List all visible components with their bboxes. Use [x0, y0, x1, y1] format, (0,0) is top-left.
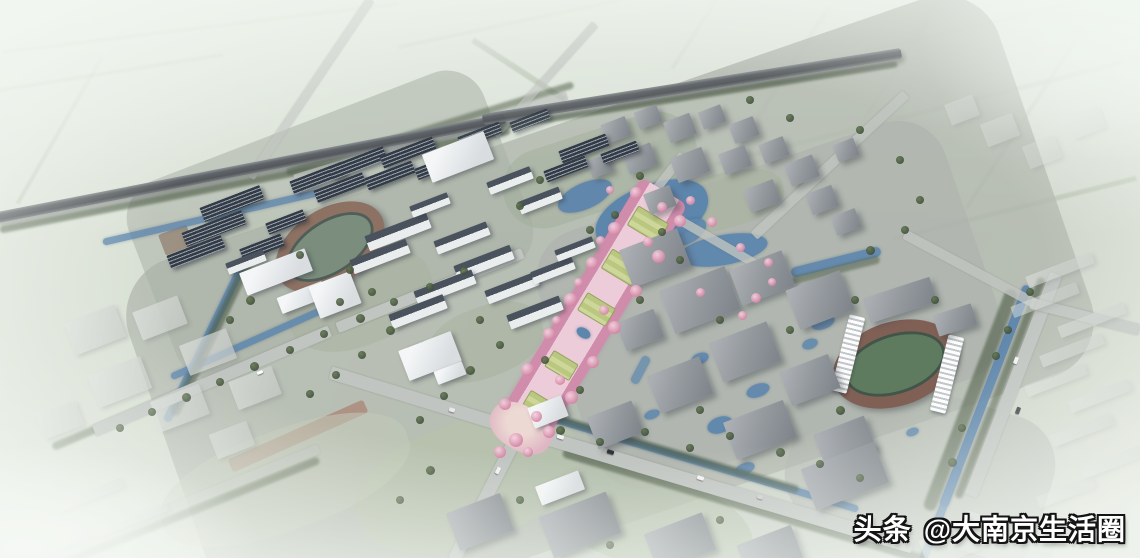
- tree: [416, 416, 424, 424]
- tree: [1026, 288, 1034, 296]
- blossom-tree: [523, 447, 533, 457]
- watermark: 头条@大南京生活圈: [854, 508, 1126, 548]
- tree: [586, 226, 594, 234]
- blossom-tree: [586, 257, 598, 269]
- tree: [466, 366, 475, 375]
- tree: [536, 176, 544, 184]
- tree: [866, 246, 875, 255]
- tree: [948, 458, 957, 467]
- blossom-tree: [630, 285, 642, 297]
- tree: [576, 386, 584, 394]
- tree: [776, 448, 785, 457]
- tree: [346, 266, 354, 274]
- tree: [641, 428, 649, 436]
- tree: [658, 228, 666, 236]
- tree: [516, 202, 524, 210]
- blossom-tree: [531, 411, 542, 422]
- blossom-tree: [608, 321, 621, 334]
- tree: [476, 316, 484, 324]
- tree: [992, 352, 1000, 360]
- tree: [426, 283, 434, 291]
- tree: [636, 172, 644, 180]
- blossom-tree: [555, 375, 565, 385]
- blossom-tree: [552, 316, 561, 325]
- blossom-tree: [543, 328, 555, 340]
- blossom-tree: [657, 202, 667, 212]
- tree: [856, 474, 864, 482]
- blossom-tree: [764, 258, 773, 267]
- blossom-tree: [738, 311, 747, 320]
- tree: [556, 426, 565, 435]
- tree: [460, 267, 468, 275]
- tree: [836, 406, 845, 415]
- tree: [746, 96, 754, 104]
- blossom-tree: [599, 305, 609, 315]
- car: [1015, 406, 1021, 414]
- blossom-tree: [494, 446, 506, 458]
- tree: [148, 408, 156, 416]
- tree: [896, 156, 904, 164]
- tree: [786, 326, 794, 334]
- watermark-brand-toutiao: 头条: [854, 514, 912, 545]
- faded-building: [1050, 413, 1114, 447]
- blossom-tree: [565, 391, 578, 404]
- tree: [250, 362, 259, 371]
- tree: [816, 460, 824, 468]
- blossom-tree: [521, 363, 534, 376]
- tree: [901, 226, 909, 234]
- tree: [696, 406, 704, 414]
- tree: [116, 424, 124, 432]
- faded-building: [1081, 445, 1140, 478]
- blossom-tree: [630, 187, 642, 199]
- blossom-tree: [736, 243, 745, 252]
- tree: [296, 251, 304, 259]
- tree: [931, 296, 939, 304]
- tree: [426, 466, 435, 475]
- tree: [958, 424, 966, 432]
- blossom-tree: [674, 215, 686, 227]
- tree: [226, 316, 234, 324]
- tree: [336, 298, 344, 306]
- tree: [916, 196, 924, 204]
- campus-aerial-rendering: 头条@大南京生活圈: [0, 0, 1140, 558]
- blossom-tree: [751, 293, 761, 303]
- tree: [356, 314, 365, 323]
- tree: [686, 444, 694, 452]
- tree: [182, 393, 191, 402]
- tree: [246, 296, 255, 305]
- tree: [611, 211, 619, 219]
- tree: [440, 392, 448, 400]
- tree: [396, 496, 404, 504]
- blossom-tree: [499, 398, 511, 410]
- tree: [390, 298, 398, 306]
- blossom-tree: [696, 288, 705, 297]
- tree: [726, 432, 734, 440]
- tree: [676, 256, 684, 264]
- tree: [332, 371, 340, 379]
- blossom-tree: [686, 196, 695, 205]
- blossom-tree: [596, 236, 605, 245]
- tree: [496, 341, 504, 349]
- tree: [851, 296, 859, 304]
- tree: [286, 346, 294, 354]
- tree: [541, 356, 549, 364]
- faded-building: [64, 304, 127, 355]
- tree: [716, 316, 724, 324]
- tree: [606, 541, 614, 549]
- faded-building: [1068, 379, 1132, 413]
- tree: [516, 496, 524, 504]
- blossom-tree: [587, 356, 599, 368]
- watermark-handle: @大南京生活圈: [924, 514, 1126, 545]
- blossom-tree: [652, 250, 665, 263]
- tree: [386, 326, 395, 335]
- tree: [216, 378, 224, 386]
- blossom-tree: [543, 426, 555, 438]
- blossom-tree: [768, 278, 776, 286]
- tree: [320, 330, 328, 338]
- blossom-tree: [707, 217, 717, 227]
- tree: [636, 296, 644, 304]
- tree: [856, 126, 864, 134]
- blossom-tree: [643, 237, 653, 247]
- tree: [358, 351, 366, 359]
- blossom-tree: [509, 433, 523, 447]
- blossom-tree: [606, 186, 614, 194]
- faded-building: [56, 478, 125, 512]
- tree: [596, 438, 604, 446]
- tree: [368, 288, 376, 296]
- blossom-tree: [608, 222, 621, 235]
- tree: [786, 114, 794, 122]
- blossom-tree: [574, 278, 583, 287]
- tree: [306, 390, 314, 398]
- faded-building: [88, 356, 152, 408]
- blossom-tree: [564, 293, 577, 306]
- tree: [1004, 326, 1012, 334]
- tree: [716, 516, 724, 524]
